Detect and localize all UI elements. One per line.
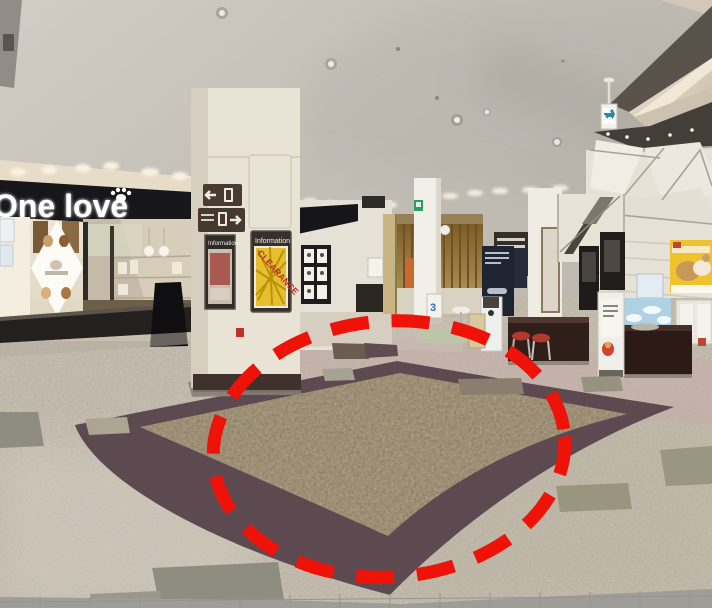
svg-text:Information: Information: [255, 238, 290, 245]
svg-text:3: 3: [430, 302, 436, 314]
svg-text:Information: Information: [208, 241, 238, 247]
